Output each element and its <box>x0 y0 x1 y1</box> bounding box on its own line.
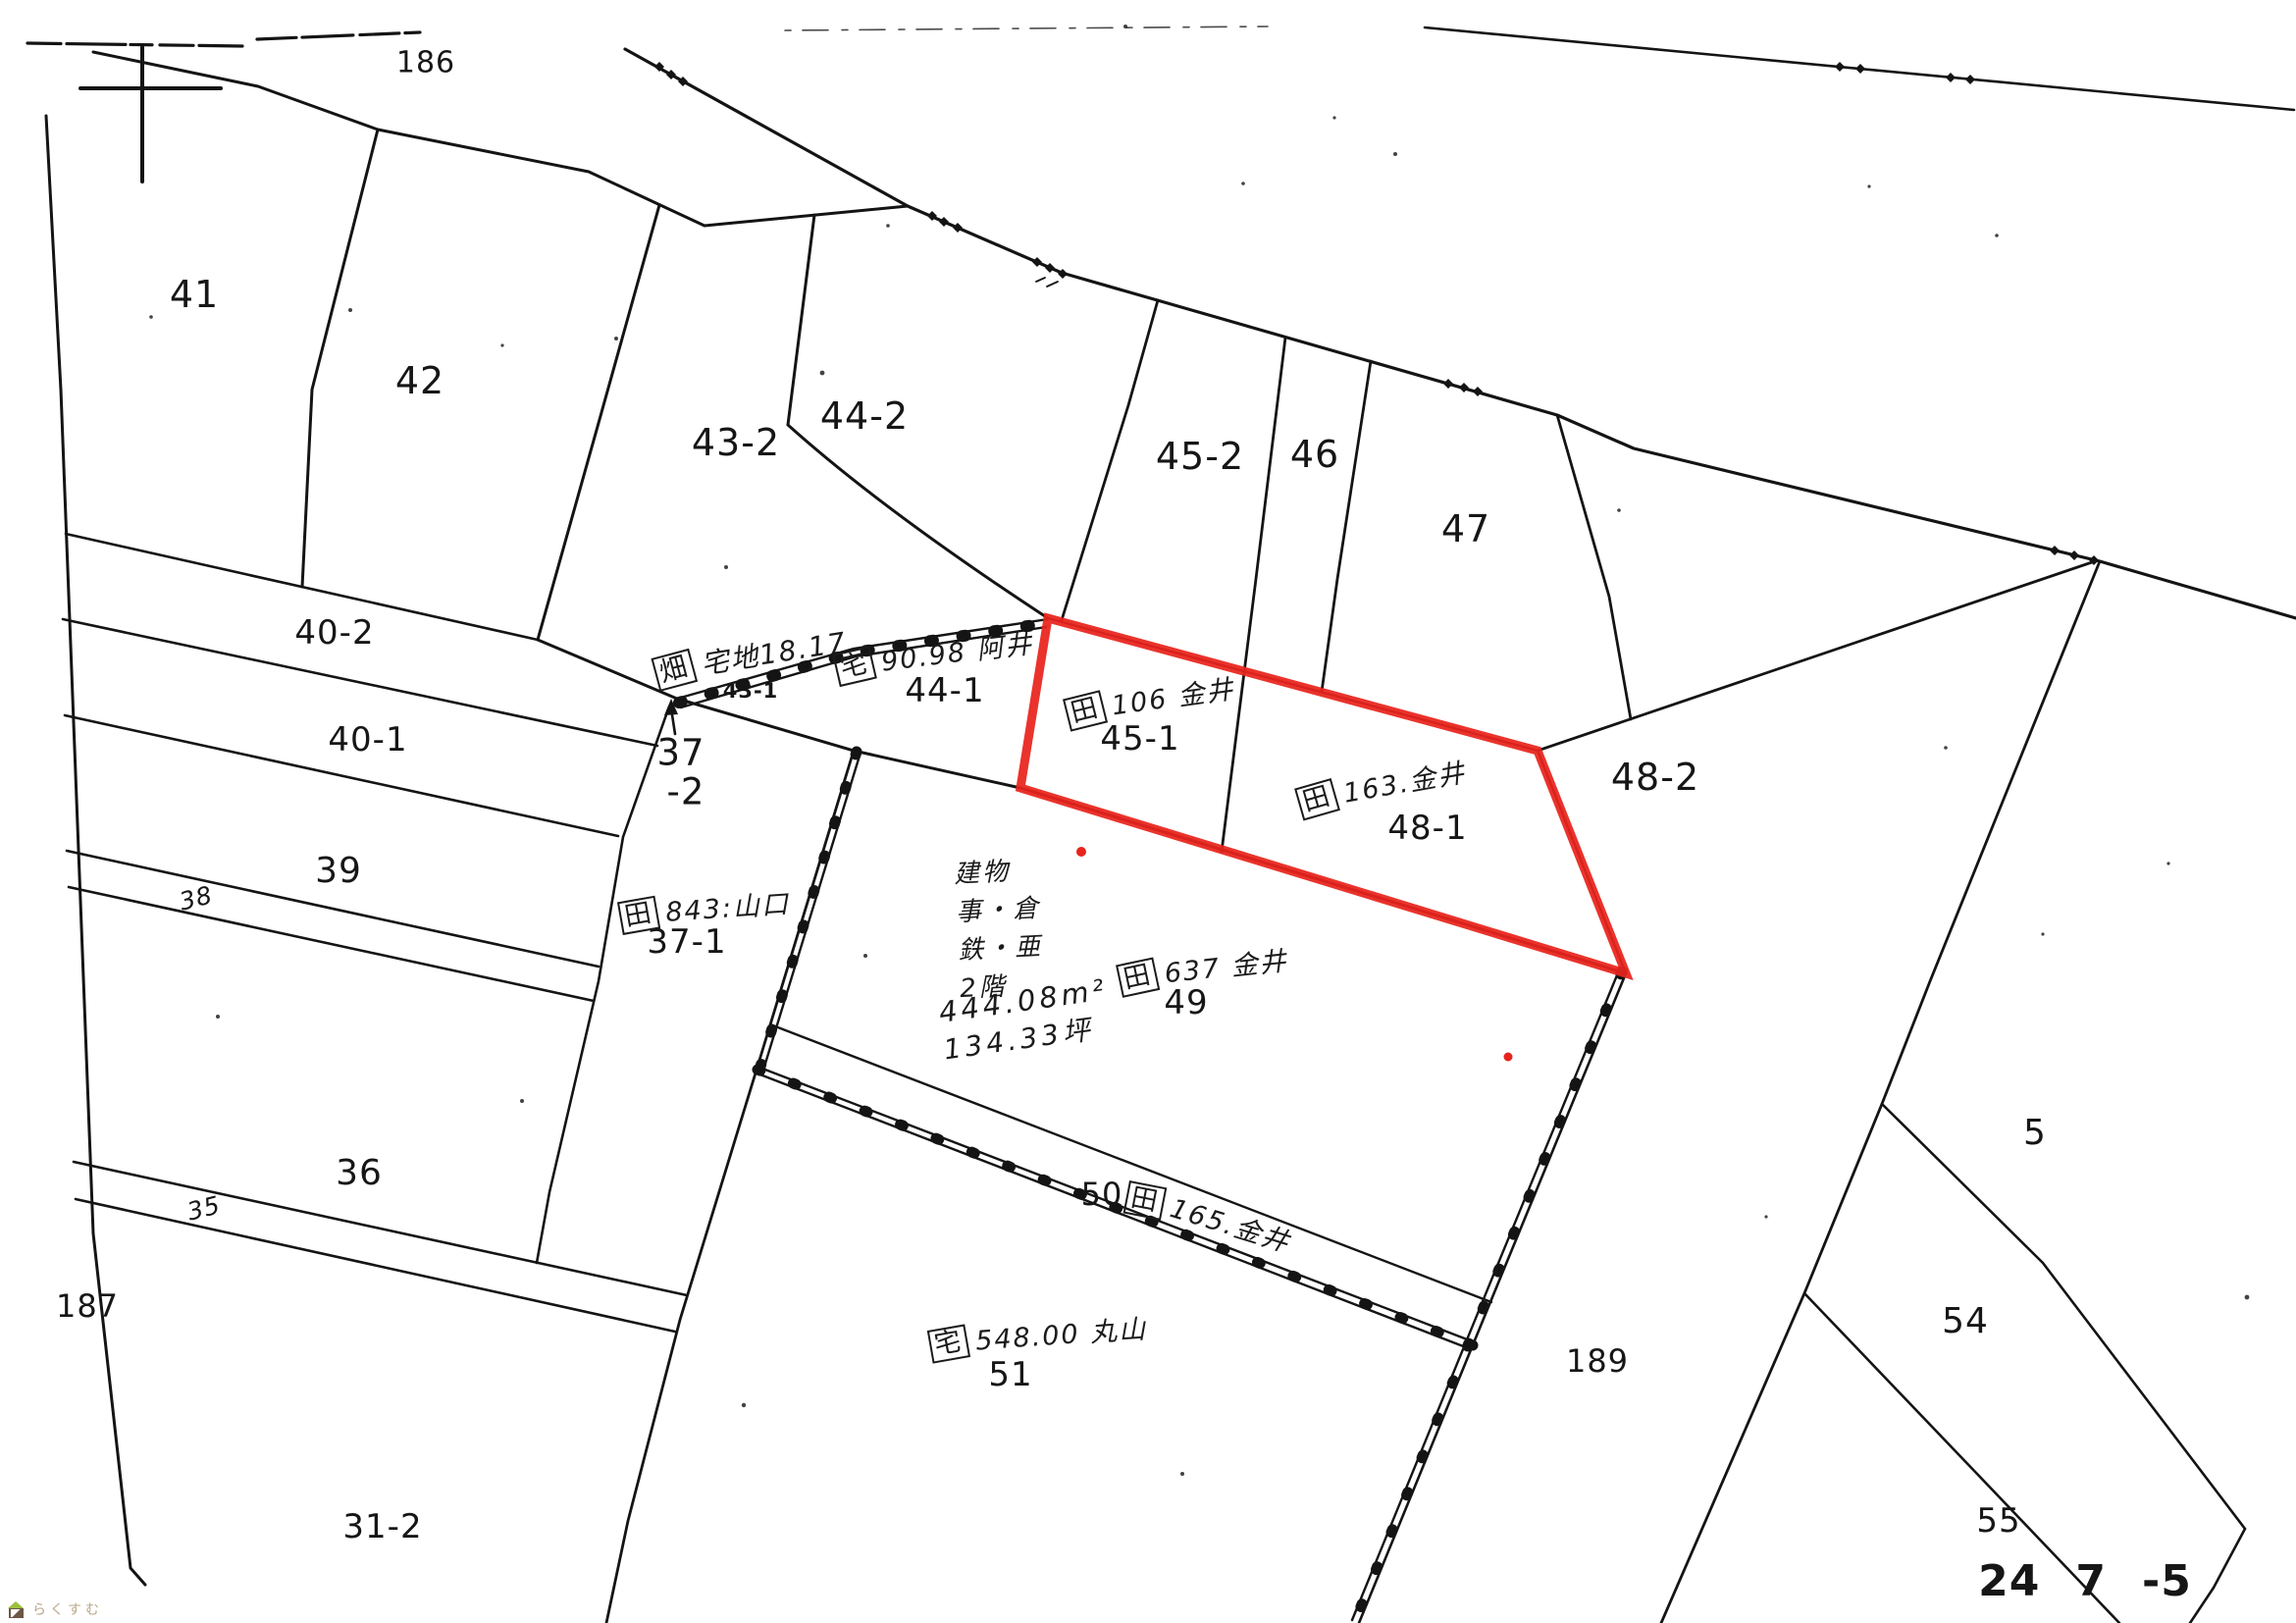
red-marker-dot-2 <box>1504 1053 1513 1062</box>
boundary-37-left <box>537 707 669 1263</box>
parcel-label-51: 51 <box>988 1358 1032 1393</box>
parcel-boundary-drawing <box>0 0 2296 1623</box>
parcel-label-24-7-5: 24 7 -5 <box>1978 1559 2192 1604</box>
strip-50-top <box>770 1024 1491 1302</box>
region-label-186: 186 <box>396 47 455 79</box>
parcel-label-37-minor: -2 <box>667 774 705 812</box>
strip-38-bottom <box>69 887 594 1001</box>
top-road-edge-left2 <box>257 32 420 39</box>
building-note-line3: 鉄・亜 <box>957 926 1044 968</box>
tiny-road-note <box>1036 278 1058 287</box>
parcel-label-43-1: 43-1 <box>723 680 779 702</box>
parcel-label-47: 47 <box>1441 510 1490 550</box>
watermark: らくすむ <box>8 1599 103 1619</box>
parcel-label-41: 41 <box>170 276 219 315</box>
parcel-label-40-1: 40-1 <box>328 723 407 759</box>
survey-cross-icon <box>80 47 221 182</box>
landuse-mark-51: 宅 <box>927 1324 970 1363</box>
region-label-187: 187 <box>56 1290 119 1324</box>
boundary-45_2-46-and-45_1-48_1 <box>1222 338 1285 852</box>
parcel-label-40-2: 40-2 <box>294 616 374 652</box>
top-road-edge-left <box>27 43 242 46</box>
parcel-label-36: 36 <box>336 1155 383 1192</box>
building-note-line2: 事・倉 <box>955 888 1042 929</box>
parcel-label-48-1: 48-1 <box>1387 811 1467 847</box>
boundary-42-43_2 <box>538 205 659 640</box>
boundary-47-east <box>1557 415 1631 719</box>
parcel-label-48-2: 48-2 <box>1611 759 1699 798</box>
boundary-44_2-45_2 <box>1062 300 1158 620</box>
landuse-mark-49: 田 <box>1116 957 1160 997</box>
strip-35-bottom <box>76 1199 675 1332</box>
parcel-label-46: 46 <box>1290 436 1339 475</box>
watermark-text: らくすむ <box>32 1599 103 1619</box>
boundary-5-54 <box>1882 1104 2245 1529</box>
parcel-label-42: 42 <box>395 362 444 401</box>
parcel-label-7: 7 <box>2075 1559 2107 1604</box>
parcel-label-43-2: 43-2 <box>692 424 780 463</box>
landuse-mark-50: 田 <box>1123 1180 1168 1221</box>
parcel-label-44-1: 44-1 <box>905 674 984 709</box>
boundary-51-189 <box>1359 973 1626 1623</box>
parcel-label-50: 50 <box>1081 1178 1123 1212</box>
parcel-label-55: 55 <box>1976 1504 2020 1540</box>
parcel-label-45-1: 45-1 <box>1100 722 1179 758</box>
parcel-label-minus5: -5 <box>2142 1559 2192 1604</box>
boundary-24_7-corner <box>2190 1529 2245 1623</box>
boundary-46-47 <box>1322 361 1371 692</box>
house-logo-icon <box>8 1601 25 1618</box>
boundary-44_2-bottom <box>788 425 1048 618</box>
parcel-label-31-2: 31-2 <box>342 1510 422 1545</box>
parcel-label-54: 54 <box>1942 1303 1989 1340</box>
parcel-label-44-2: 44-2 <box>820 397 909 437</box>
parcel-label-49: 49 <box>1164 986 1208 1021</box>
region-label-189: 189 <box>1566 1345 1629 1379</box>
boundary-41-42 <box>302 130 378 587</box>
boundary-47-48_2 <box>1538 561 2095 751</box>
boundary-49-west <box>606 751 854 1623</box>
boundary-43_2-44_2 <box>788 215 814 425</box>
boundary-51-189-hatch <box>1355 971 1622 1621</box>
parcel-label-45-2: 45-2 <box>1156 438 1244 477</box>
west-boundary <box>46 116 145 1585</box>
parcel-label-37-1: 37-1 <box>647 925 726 961</box>
survey-diamond-ticks <box>654 62 2099 565</box>
landuse-mark-45-1: 田 <box>1063 690 1108 731</box>
parcel-label-39: 39 <box>315 853 362 890</box>
top-road-edge-right-faint <box>785 26 1268 30</box>
cadastral-map: 186 41 42 43-2 44-2 45-2 46 47 48-2 40-2… <box>0 0 2296 1623</box>
scan-noise <box>149 25 2249 1476</box>
boundary-51-189-double <box>1352 970 1619 1620</box>
parcel-label-5: 5 <box>2023 1115 2047 1152</box>
parcel-label-37: 37 <box>656 735 704 773</box>
building-note-line1: 建物 <box>953 850 1040 891</box>
landuse-mark-37-1: 田 <box>617 896 660 935</box>
landuse-mark-44-1: 宅 <box>832 646 877 687</box>
red-marker-dot-1 <box>1076 847 1086 857</box>
east-diagonal-boundary <box>1661 561 2100 1623</box>
parcel-label-24: 24 <box>1978 1559 2040 1604</box>
